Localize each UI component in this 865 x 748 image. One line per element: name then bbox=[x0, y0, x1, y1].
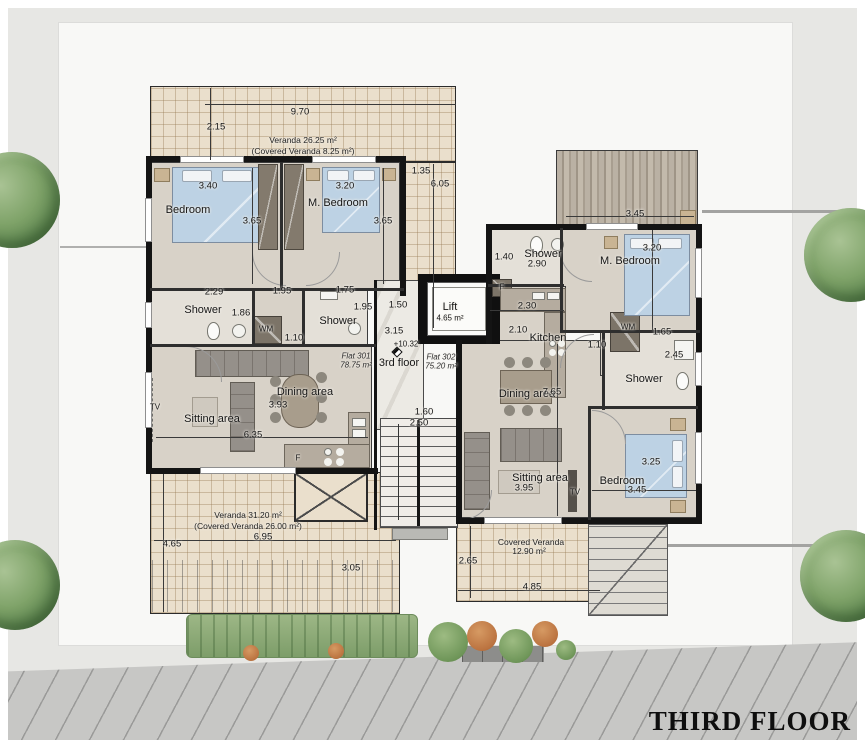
dimension-line bbox=[458, 590, 600, 591]
kitchen-sink bbox=[532, 292, 545, 300]
sliding-door bbox=[484, 517, 562, 524]
wall bbox=[400, 156, 406, 296]
dimension-line bbox=[154, 540, 396, 541]
stair-arrow bbox=[398, 424, 399, 520]
bush bbox=[328, 643, 344, 659]
wall-interior bbox=[588, 406, 698, 409]
floor-plan: 9.702.15Veranda 26.25 m²(Covered Veranda… bbox=[0, 0, 865, 748]
bush bbox=[428, 622, 468, 662]
window bbox=[145, 372, 152, 428]
dining-chairs bbox=[270, 376, 281, 387]
dimension-line bbox=[592, 490, 696, 491]
wall-interior bbox=[560, 330, 700, 333]
dimension-line bbox=[210, 88, 211, 160]
shower-tray bbox=[674, 340, 694, 360]
window bbox=[586, 223, 638, 230]
window bbox=[145, 198, 152, 242]
washing-machine bbox=[254, 316, 282, 344]
property-line-west bbox=[60, 246, 148, 248]
pillow bbox=[353, 170, 375, 181]
sliding-door bbox=[200, 467, 296, 474]
bush bbox=[243, 645, 259, 661]
skylight bbox=[294, 472, 368, 522]
wall bbox=[374, 280, 377, 530]
window bbox=[695, 432, 702, 484]
bush bbox=[499, 629, 533, 663]
wall-interior bbox=[302, 290, 305, 346]
dimension-line bbox=[205, 104, 456, 105]
wall-interior bbox=[488, 284, 564, 287]
toilet bbox=[207, 322, 220, 340]
lift-car bbox=[427, 282, 491, 336]
wall-interior bbox=[252, 290, 255, 346]
sink bbox=[320, 291, 338, 300]
dimension-line bbox=[490, 310, 564, 311]
dimension-line bbox=[557, 344, 558, 516]
bedside-table bbox=[670, 500, 686, 513]
bedside-table bbox=[306, 168, 320, 181]
dining-chairs bbox=[504, 357, 515, 368]
wall-interior bbox=[602, 332, 605, 410]
external-stairs bbox=[588, 524, 668, 616]
sink bbox=[348, 322, 361, 335]
stove-burners bbox=[549, 340, 556, 347]
sink bbox=[232, 324, 246, 338]
bush bbox=[532, 621, 558, 647]
kitchen-sink bbox=[352, 418, 366, 427]
pillow bbox=[327, 170, 349, 181]
rug bbox=[498, 470, 540, 494]
dining-table bbox=[281, 374, 319, 428]
hedge bbox=[186, 614, 418, 658]
dimension-line bbox=[566, 216, 694, 217]
plan-title: THIRD FLOOR bbox=[649, 706, 851, 737]
window bbox=[180, 156, 244, 163]
rug bbox=[192, 397, 218, 427]
stair-stoop bbox=[392, 528, 448, 540]
wall-interior bbox=[150, 288, 404, 291]
bedside-table bbox=[382, 168, 396, 181]
wall-interior bbox=[560, 228, 563, 332]
toilet bbox=[676, 372, 689, 390]
tv-wall-line bbox=[152, 378, 153, 442]
bedside-table bbox=[670, 418, 686, 431]
dimension-line bbox=[163, 474, 164, 612]
dining-table bbox=[500, 370, 552, 404]
dimension-line bbox=[652, 230, 653, 330]
toilet bbox=[530, 236, 543, 254]
stove-burners bbox=[324, 448, 332, 456]
veranda-north bbox=[150, 86, 456, 162]
pillow bbox=[182, 170, 212, 182]
sofa bbox=[500, 428, 562, 462]
wall-interior bbox=[588, 406, 591, 520]
bedside-table bbox=[154, 168, 170, 182]
tv-unit bbox=[568, 470, 577, 512]
pillow bbox=[630, 238, 654, 249]
dimension-line bbox=[156, 437, 368, 438]
stair-divider bbox=[417, 420, 420, 526]
window bbox=[145, 302, 152, 328]
dimension-line bbox=[470, 526, 471, 598]
window bbox=[695, 352, 702, 386]
pillow bbox=[658, 238, 682, 249]
wall bbox=[456, 340, 462, 524]
bedside-table bbox=[604, 236, 618, 249]
kitchen-sink bbox=[547, 292, 560, 300]
wardrobe bbox=[258, 164, 278, 250]
sofa bbox=[230, 382, 255, 452]
pillow bbox=[672, 440, 683, 462]
bush bbox=[556, 640, 576, 660]
stair-landing bbox=[376, 280, 424, 430]
wardrobe bbox=[284, 164, 304, 250]
dimension-line bbox=[252, 168, 253, 284]
window bbox=[695, 248, 702, 298]
dimension-line bbox=[433, 164, 434, 328]
window bbox=[312, 156, 376, 163]
pillow bbox=[672, 466, 683, 488]
wall-interior bbox=[150, 344, 376, 347]
wall-interior bbox=[280, 162, 283, 290]
bush bbox=[467, 621, 497, 651]
pergola-slats bbox=[152, 560, 398, 612]
dimension-line bbox=[383, 168, 384, 284]
pillow bbox=[222, 170, 252, 182]
